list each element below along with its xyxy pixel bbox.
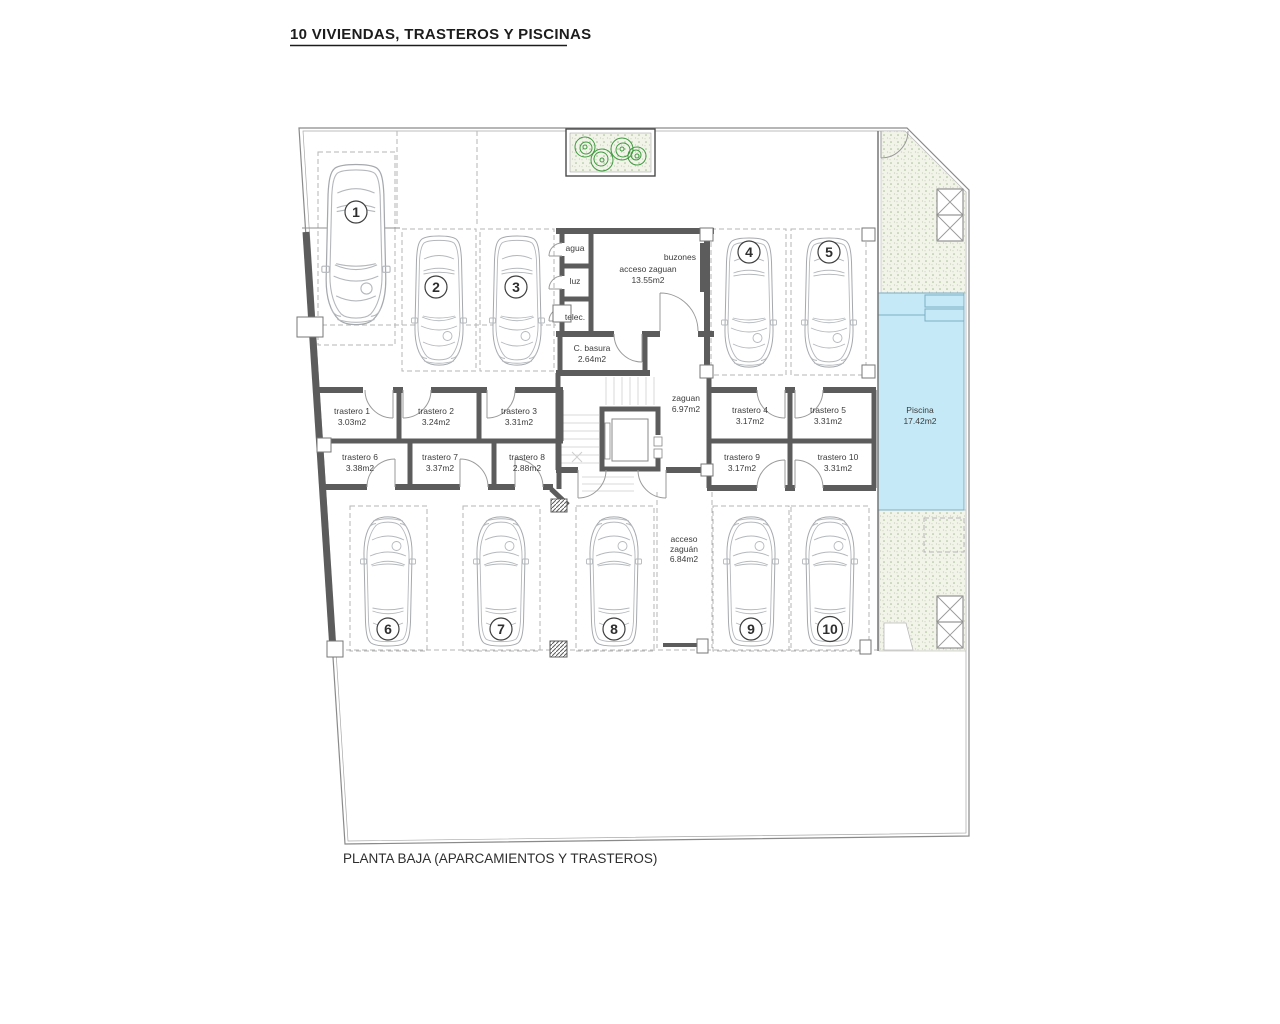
parking-badge-6: 6 [377,618,399,640]
svg-text:3: 3 [512,279,520,295]
trastero-8-name: trastero 8 [509,452,545,462]
car-1 [322,164,390,324]
label-c-basura-name: C. basura [574,343,611,353]
svg-text:4: 4 [745,244,753,260]
trastero-3-name: trastero 3 [501,406,537,416]
skylight-box [937,596,963,622]
svg-text:9: 9 [747,621,755,637]
page-title: 10 VIVIENDAS, TRASTEROS Y PISCINAS [290,26,591,43]
label-telec: telec. [565,312,585,322]
skylight-box [937,189,963,215]
trastero-10-area: 3.31m2 [824,463,853,473]
parking-badge-8: 8 [603,618,625,640]
parking-badge-3: 3 [505,276,527,298]
svg-text:5: 5 [825,244,833,260]
parking-badge-2: 2 [425,276,447,298]
planter [566,129,655,176]
svg-text:10: 10 [822,621,838,637]
label-acceso-sur-1: acceso [671,534,698,544]
mailboxes-panel [700,243,706,292]
label-acceso-sur-area: 6.84m2 [670,554,699,564]
pool-step [925,309,964,321]
parking-badge-5: 5 [818,241,840,263]
trastero-4-name: trastero 4 [732,405,768,415]
pool-water [878,293,964,510]
trastero-9-area: 3.17m2 [728,463,757,473]
trastero-8-area: 2.88m2 [513,463,542,473]
label-zaguan-name: zaguan [672,393,700,403]
label-acceso-sur-2: zaguán [670,544,698,554]
trastero-1-name: trastero 1 [334,406,370,416]
parking-badge-4: 4 [738,241,760,263]
svg-text:8: 8 [610,621,618,637]
label-agua: agua [566,243,585,253]
trastero-2-name: trastero 2 [418,406,454,416]
trastero-5-area: 3.31m2 [814,416,843,426]
floor-plan-page: 10 VIVIENDAS, TRASTEROS Y PISCINAS [0,0,1280,1024]
car-2 [412,236,467,365]
svg-text:7: 7 [497,621,505,637]
trastero-6-area: 3.38m2 [346,463,375,473]
label-buzones: buzones [664,252,696,262]
car-3 [490,236,545,365]
header: 10 VIVIENDAS, TRASTEROS Y PISCINAS [290,26,591,46]
pool-step [925,295,964,307]
floor-plan-drawing: 10 VIVIENDAS, TRASTEROS Y PISCINAS [0,0,1280,1024]
svg-text:6: 6 [384,621,392,637]
trastero-5-name: trastero 5 [810,405,846,415]
trastero-7-area: 3.37m2 [426,463,455,473]
plan-caption: PLANTA BAJA (APARCAMIENTOS Y TRASTEROS) [343,851,657,866]
skylight-box [937,215,963,241]
svg-text:1: 1 [352,204,360,220]
elevator [602,409,662,469]
label-zaguan-area: 6.97m2 [672,404,701,414]
parking-badge-1: 1 [345,201,367,223]
parking-badge-10: 10 [818,617,843,642]
parking-badge-7: 7 [490,618,512,640]
label-luz: luz [570,276,581,286]
parking-badge-9: 9 [740,618,762,640]
trastero-6-name: trastero 6 [342,452,378,462]
label-acceso-zaguan-area: 13.55m2 [631,275,664,285]
trastero-2-area: 3.24m2 [422,417,451,427]
trastero-4-area: 3.17m2 [736,416,765,426]
trastero-1-area: 3.03m2 [338,417,367,427]
skylight-box [937,622,963,648]
trastero-3-area: 3.31m2 [505,417,534,427]
svg-text:2: 2 [432,279,440,295]
label-piscina-area: 17.42m2 [903,416,936,426]
trastero-10-name: trastero 10 [818,452,859,462]
label-c-basura-area: 2.64m2 [578,354,607,364]
trastero-9-name: trastero 9 [724,452,760,462]
label-acceso-zaguan-name: acceso zaguan [619,264,676,274]
label-piscina-name: Piscina [906,405,934,415]
trastero-7-name: trastero 7 [422,452,458,462]
